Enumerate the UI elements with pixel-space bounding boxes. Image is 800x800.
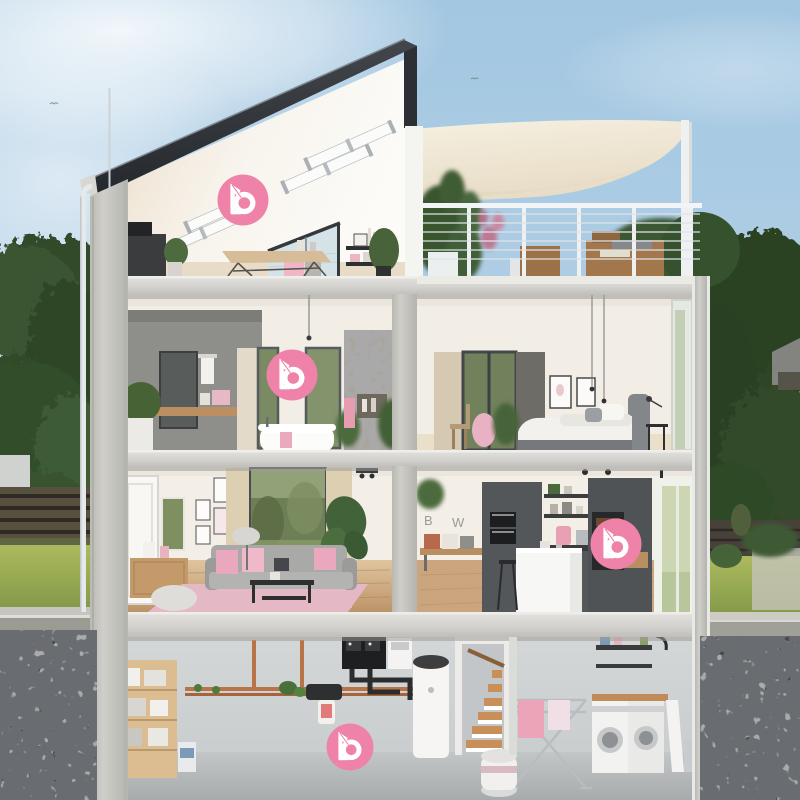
- svg-text:B: B: [424, 513, 433, 528]
- svg-text:W: W: [452, 515, 465, 530]
